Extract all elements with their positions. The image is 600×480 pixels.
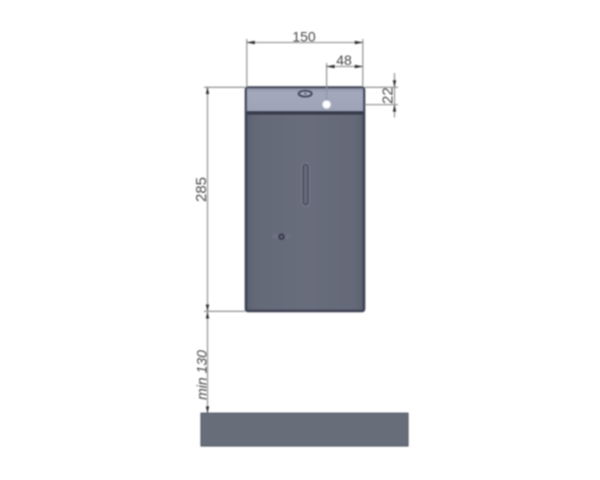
svg-text:min 130: min 130 [193, 350, 209, 400]
svg-text:22: 22 [379, 87, 396, 104]
svg-text:48: 48 [336, 52, 352, 68]
svg-text:285: 285 [193, 177, 210, 202]
svg-text:150: 150 [292, 29, 316, 45]
